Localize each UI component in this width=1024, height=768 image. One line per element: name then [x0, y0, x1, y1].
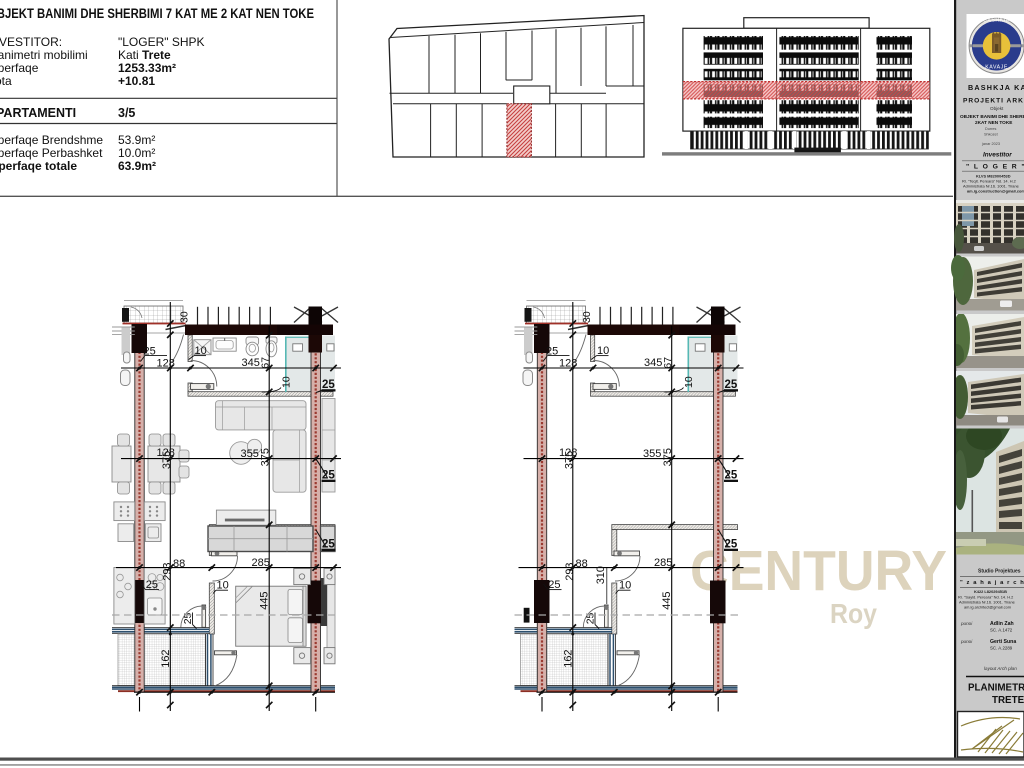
svg-text:2KAT NEN TOKE: 2KAT NEN TOKE — [975, 120, 1012, 125]
svg-text:am.ig.construction@gmail.com: am.ig.construction@gmail.com — [967, 189, 1024, 194]
svg-text:K422 L82029451B: K422 L82029451B — [974, 589, 1007, 594]
svg-text:KAVAJE: KAVAJE — [985, 65, 1008, 71]
svg-text:+10.81: +10.81 — [118, 74, 155, 88]
svg-text:" z a h a j a r c h i t e c: " z a h a j a r c h i t e c — [960, 580, 1024, 586]
svg-text:Siperfaqe: Siperfaqe — [0, 61, 39, 75]
svg-text:punoi: punoi — [960, 621, 973, 626]
svg-text:Objekt: Objekt — [990, 106, 1004, 111]
svg-text:janar 2023: janar 2023 — [981, 142, 1000, 146]
svg-text:Siperfaqe Perbashket: Siperfaqe Perbashket — [0, 146, 103, 160]
svg-text:am.ig.architect@gmail.com: am.ig.architect@gmail.com — [964, 605, 1011, 610]
svg-text:PLANIMETRI K: PLANIMETRI K — [968, 683, 1024, 694]
svg-text:Durres: Durres — [985, 127, 996, 131]
svg-text:Kota: Kota — [0, 74, 12, 88]
svg-text:Kati Trete: Kati Trete — [118, 48, 171, 62]
svg-text:"LOGER" SHPK: "LOGER" SHPK — [118, 35, 205, 49]
svg-text:SC. A.1472: SC. A.1472 — [990, 628, 1013, 633]
svg-text:63.9m²: 63.9m² — [118, 159, 156, 173]
svg-text:Siperfaqe totale: Siperfaqe totale — [0, 159, 77, 173]
svg-text:Roy: Roy — [830, 598, 877, 629]
svg-text:3/5: 3/5 — [118, 106, 135, 120]
svg-text:10.0m²: 10.0m² — [118, 146, 155, 160]
svg-text:BASHKJA KAVAJE: BASHKJA KAVAJE — [968, 83, 1024, 92]
svg-text:PROJEKTI ARKITEKT: PROJEKTI ARKITEKT — [963, 98, 1024, 105]
svg-text:1253.33m²: 1253.33m² — [118, 61, 176, 75]
svg-text:BASHKIA: BASHKIA — [983, 18, 1010, 24]
svg-text:SC. A.2289: SC. A.2289 — [990, 646, 1013, 651]
svg-text:TRETE: TRETE — [992, 695, 1024, 706]
svg-text:Planimetri mobilimi: Planimetri mobilimi — [0, 48, 88, 62]
svg-text:punoi: punoi — [960, 639, 973, 644]
svg-text:OBJEKT BANIMI DHE SHERBIMI: OBJEKT BANIMI DHE SHERBIMI — [960, 114, 1024, 119]
svg-text:INVESTITOR:: INVESTITOR: — [0, 35, 62, 49]
svg-text:Investitor: Investitor — [983, 152, 1012, 159]
svg-text:310: 310 — [595, 566, 607, 584]
svg-text:Shkozet: Shkozet — [984, 133, 999, 137]
svg-text:OBJEKT BANIMI DHE SHERBIMI 7 K: OBJEKT BANIMI DHE SHERBIMI 7 KAT ME 2 KA… — [0, 6, 314, 21]
svg-text:Adlin Zah: Adlin Zah — [990, 621, 1014, 627]
svg-text:Gerti Suna: Gerti Suna — [990, 639, 1016, 645]
svg-text:APARTAMENTI: APARTAMENTI — [0, 106, 76, 120]
svg-text:" L O G E R " shpk: " L O G E R " shpk — [966, 164, 1024, 171]
svg-text:Siperfaqe Brendshme: Siperfaqe Brendshme — [0, 133, 103, 147]
svg-text:Studio Projektues: Studio Projektues — [978, 569, 1021, 575]
svg-text:layout Arch plan: layout Arch plan — [984, 666, 1017, 671]
svg-text:53.9m²: 53.9m² — [118, 133, 155, 147]
